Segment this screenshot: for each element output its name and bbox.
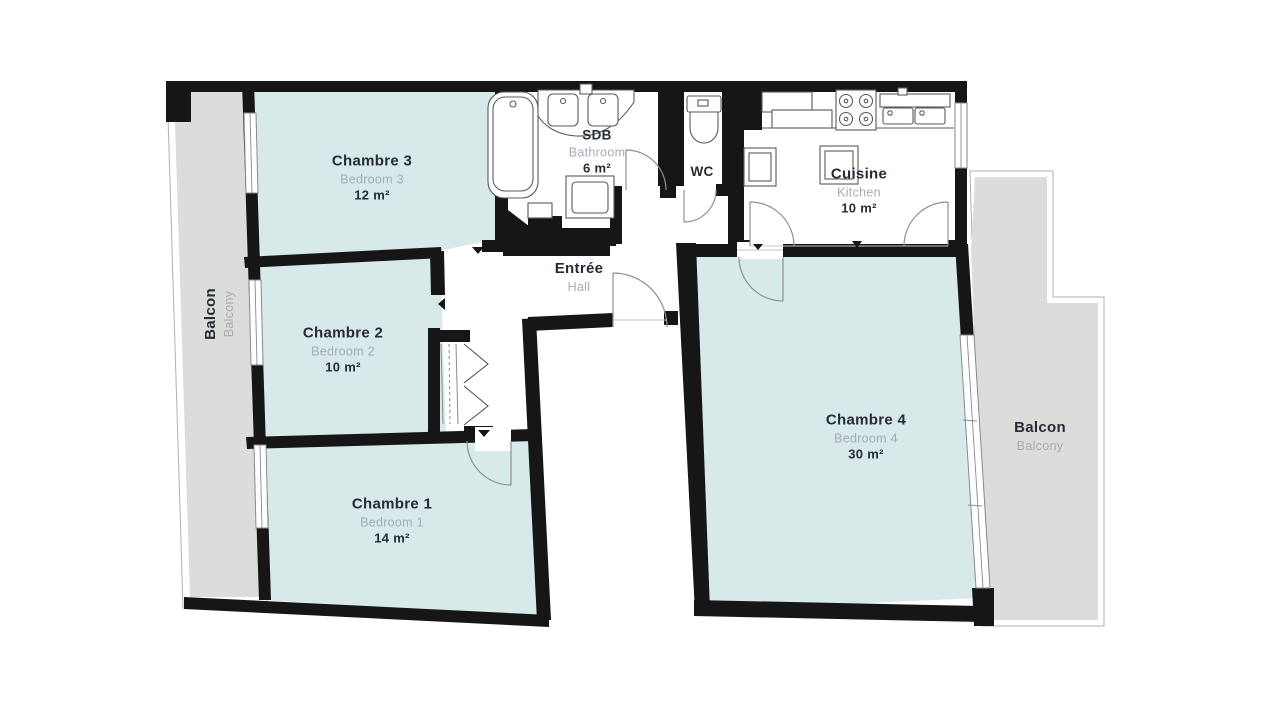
room-extra-fill [528,314,700,620]
folding-door-icon [464,386,488,425]
kitchen-sink-icon [880,88,950,124]
folding-door-icon [464,344,488,383]
door-wc [684,190,716,222]
room-area: 30 m² [826,446,906,463]
room-name: Chambre 3 [332,152,412,172]
room-subname: Balcony [1014,438,1066,454]
room-name: Balcon [1014,418,1066,438]
room-name: Chambre 2 [303,324,383,344]
room-area: 12 m² [332,187,412,204]
stove-icon [836,90,876,130]
room-area: 10 m² [303,359,383,376]
floor-plan-page: Chambre 3 Bedroom 3 12 m² Chambre 2 Bedr… [0,0,1280,720]
room-subname: Bedroom 3 [332,171,412,187]
room-name: Entrée [555,259,604,279]
label-kitchen: Cuisine Kitchen 10 m² [831,165,887,218]
room-name: WC [690,163,713,181]
label-bedroom1: Chambre 1 Bedroom 1 14 m² [352,495,432,548]
room-name: SDB [569,127,626,145]
toilet-icon [687,96,721,143]
room-name: Chambre 1 [352,495,432,515]
label-bathroom: SDB Bathroom 6 m² [569,127,626,178]
washing-machine-icon [566,176,614,218]
label-wc: WC [690,163,713,181]
label-balcony-left: Balcon Balcony [201,288,237,340]
door-kitchen-right [904,202,948,246]
room-subname: Balcony [221,288,237,340]
room-subname: Bedroom 2 [303,343,383,359]
room-area: 6 m² [569,160,626,177]
room-area: 14 m² [352,530,432,547]
room-subname: Bedroom 1 [352,514,432,530]
label-hall: Entrée Hall [555,259,604,295]
room-name: Cuisine [831,165,887,185]
room-subname: Hall [555,279,604,295]
bathtub-icon [488,92,538,198]
room-area: 10 m² [831,200,887,217]
label-bedroom3: Chambre 3 Bedroom 3 12 m² [332,152,412,205]
room-subname: Bedroom 4 [826,430,906,446]
door-kitchen-left [750,202,794,246]
room-subname: Kitchen [831,184,887,200]
floor-plan [0,0,1280,720]
kitchen-appliance-icon [744,148,776,186]
room-name: Chambre 4 [826,411,906,431]
room-name: Balcon [201,288,221,340]
label-bedroom2: Chambre 2 Bedroom 2 10 m² [303,324,383,377]
room-subname: Bathroom [569,144,626,160]
closet [441,344,488,425]
balcony-right [970,171,1104,626]
shower-tray-icon [528,203,552,218]
label-balcony-right: Balcon Balcony [1014,418,1066,454]
label-bedroom4: Chambre 4 Bedroom 4 30 m² [826,411,906,464]
